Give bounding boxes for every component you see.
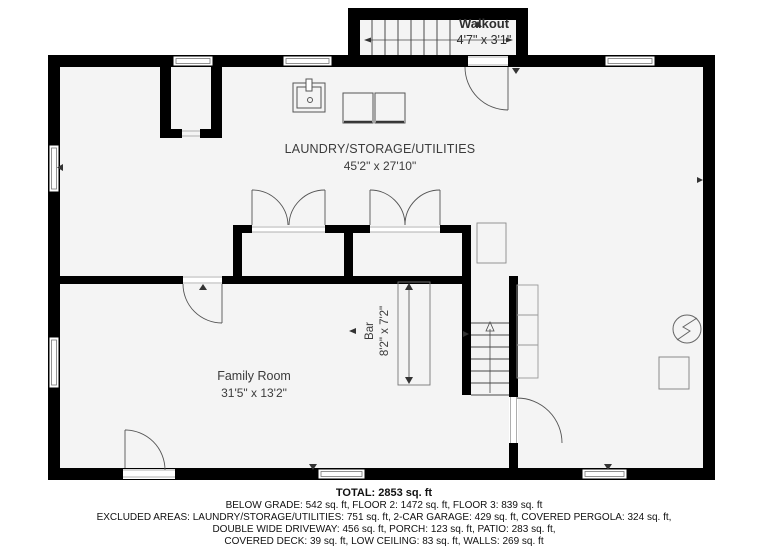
bar-label: Bar 8'2" x 7'2" [343, 296, 413, 366]
family-room-name: Family Room [184, 368, 324, 385]
window-bottom-left [318, 469, 365, 479]
walkout-label: Walkout 4'7" x 3'1" [428, 15, 540, 49]
summary-line-2: EXCLUDED AREAS: LAUNDRY/STORAGE/UTILITIE… [0, 512, 768, 524]
window-left-lower [49, 337, 59, 388]
window-left-upper [49, 145, 59, 192]
laundry-name: LAUNDRY/STORAGE/UTILITIES [268, 141, 492, 158]
window-top-left [173, 56, 213, 66]
laundry-dims: 45'2" x 27'10" [268, 158, 492, 175]
window-top-mid [283, 56, 332, 66]
window-top-right [605, 56, 655, 66]
family-room-dims: 31'5" x 13'2" [184, 385, 324, 402]
window-bottom-right [582, 469, 627, 479]
walkout-dims: 4'7" x 3'1" [428, 32, 540, 49]
floor-plan-page: Walkout 4'7" x 3'1" LAUNDRY/STORAGE/UTIL… [0, 0, 768, 549]
walkout-name: Walkout [428, 15, 540, 32]
bar-dims: 8'2" x 7'2" [378, 306, 393, 356]
area-summary: TOTAL: 2853 sq. ft BELOW GRADE: 542 sq. … [0, 487, 768, 548]
summary-line-3: DOUBLE WIDE DRIVEWAY: 456 sq. ft, PORCH:… [0, 524, 768, 536]
floor-area [48, 14, 715, 480]
family-room-label: Family Room 31'5" x 13'2" [184, 368, 324, 402]
summary-line-4: COVERED DECK: 39 sq. ft, LOW CEILING: 83… [0, 536, 768, 548]
bar-name: Bar [363, 322, 378, 340]
floor-plan-drawing [0, 0, 768, 487]
summary-total: TOTAL: 2853 sq. ft [0, 487, 768, 500]
laundry-label: LAUNDRY/STORAGE/UTILITIES 45'2" x 27'10" [268, 141, 492, 175]
summary-line-1: BELOW GRADE: 542 sq. ft, FLOOR 2: 1472 s… [0, 500, 768, 512]
